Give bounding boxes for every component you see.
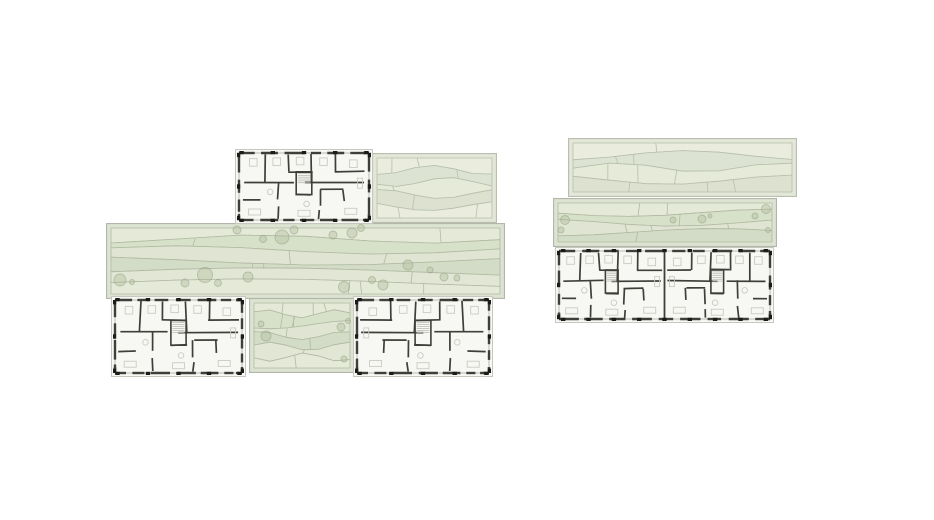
left-roof-panel-upper-right-green-roof (372, 153, 497, 223)
left-floor-plan-bottom-left-drawing (111, 296, 246, 377)
right-roof-band-upper-green-roof (568, 138, 797, 197)
left-roof-band-main-drawing (106, 223, 505, 299)
left-floor-plan-top-building (235, 149, 373, 224)
architectural-plan-canvas (0, 0, 934, 520)
right-roof-band-lower-green-roof (553, 198, 777, 247)
left-roof-extension-center-green-roof (249, 298, 355, 373)
left-floor-plan-bottom-right-drawing (353, 296, 493, 377)
left-roof-extension-center-drawing (249, 298, 355, 373)
left-floor-plan-top-drawing (235, 149, 373, 224)
right-floor-plan-drawing (555, 247, 774, 323)
left-roof-band-main-green-roof (106, 223, 505, 299)
left-floor-plan-bottom-left-building (111, 296, 246, 377)
right-roof-band-lower-drawing (553, 198, 777, 247)
left-roof-panel-upper-right-drawing (372, 153, 497, 223)
right-roof-band-upper-drawing (568, 138, 797, 197)
right-floor-plan-building (555, 247, 774, 323)
left-floor-plan-bottom-right-building (353, 296, 493, 377)
